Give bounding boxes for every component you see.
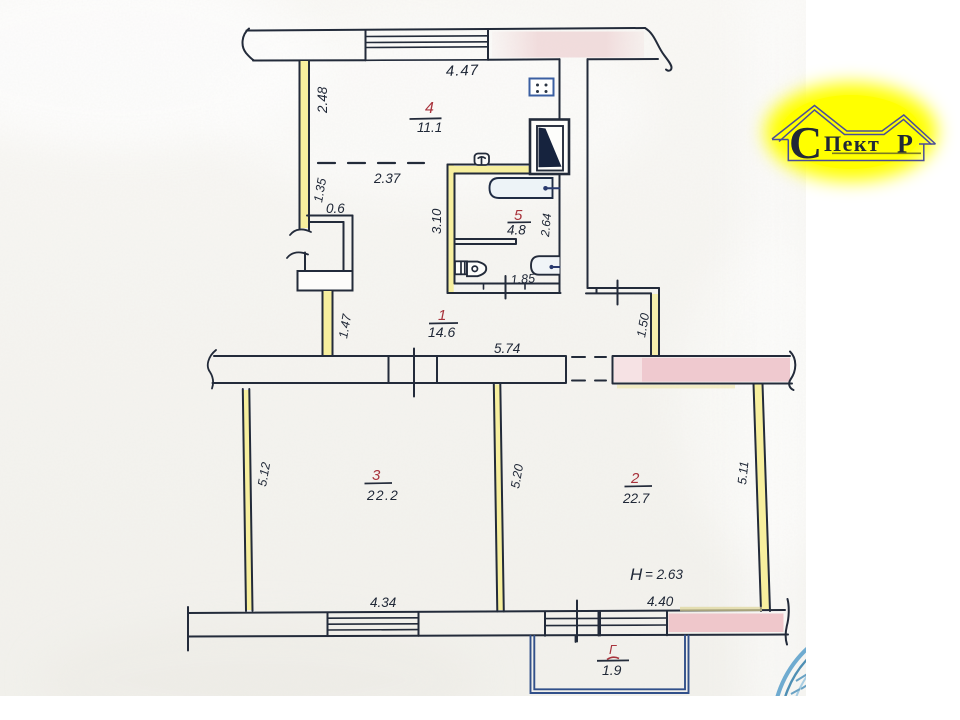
svg-text:2.48: 2.48 — [315, 86, 330, 114]
svg-text:4.34: 4.34 — [370, 595, 396, 610]
svg-text:3.10: 3.10 — [429, 208, 444, 234]
svg-text:1.85: 1.85 — [510, 271, 535, 287]
svg-text:3: 3 — [372, 467, 381, 484]
svg-text:Пект: Пект — [824, 131, 880, 156]
svg-text:= 2.63: = 2.63 — [645, 567, 683, 582]
svg-text:5: 5 — [514, 207, 523, 224]
svg-text:4.47: 4.47 — [446, 62, 480, 80]
svg-text:1.9: 1.9 — [602, 662, 622, 678]
svg-text:14.6: 14.6 — [428, 324, 455, 340]
svg-text:2.37: 2.37 — [373, 171, 401, 186]
svg-text:H: H — [630, 565, 643, 584]
svg-text:5.74: 5.74 — [494, 341, 520, 356]
svg-text:Г: Г — [609, 642, 617, 657]
svg-text:4: 4 — [425, 100, 434, 117]
svg-text:2.64: 2.64 — [538, 212, 554, 238]
svg-text:4.40: 4.40 — [647, 594, 674, 609]
svg-text:4.8: 4.8 — [507, 223, 526, 238]
svg-text:22.7: 22.7 — [622, 491, 650, 506]
svg-text:С: С — [789, 117, 822, 168]
svg-text:11.1: 11.1 — [417, 120, 442, 135]
svg-text:0.6: 0.6 — [326, 201, 345, 216]
svg-text:22.2: 22.2 — [366, 488, 399, 503]
svg-text:1: 1 — [438, 307, 446, 324]
svg-text:2: 2 — [630, 470, 640, 487]
svg-text:5.11: 5.11 — [735, 461, 751, 486]
